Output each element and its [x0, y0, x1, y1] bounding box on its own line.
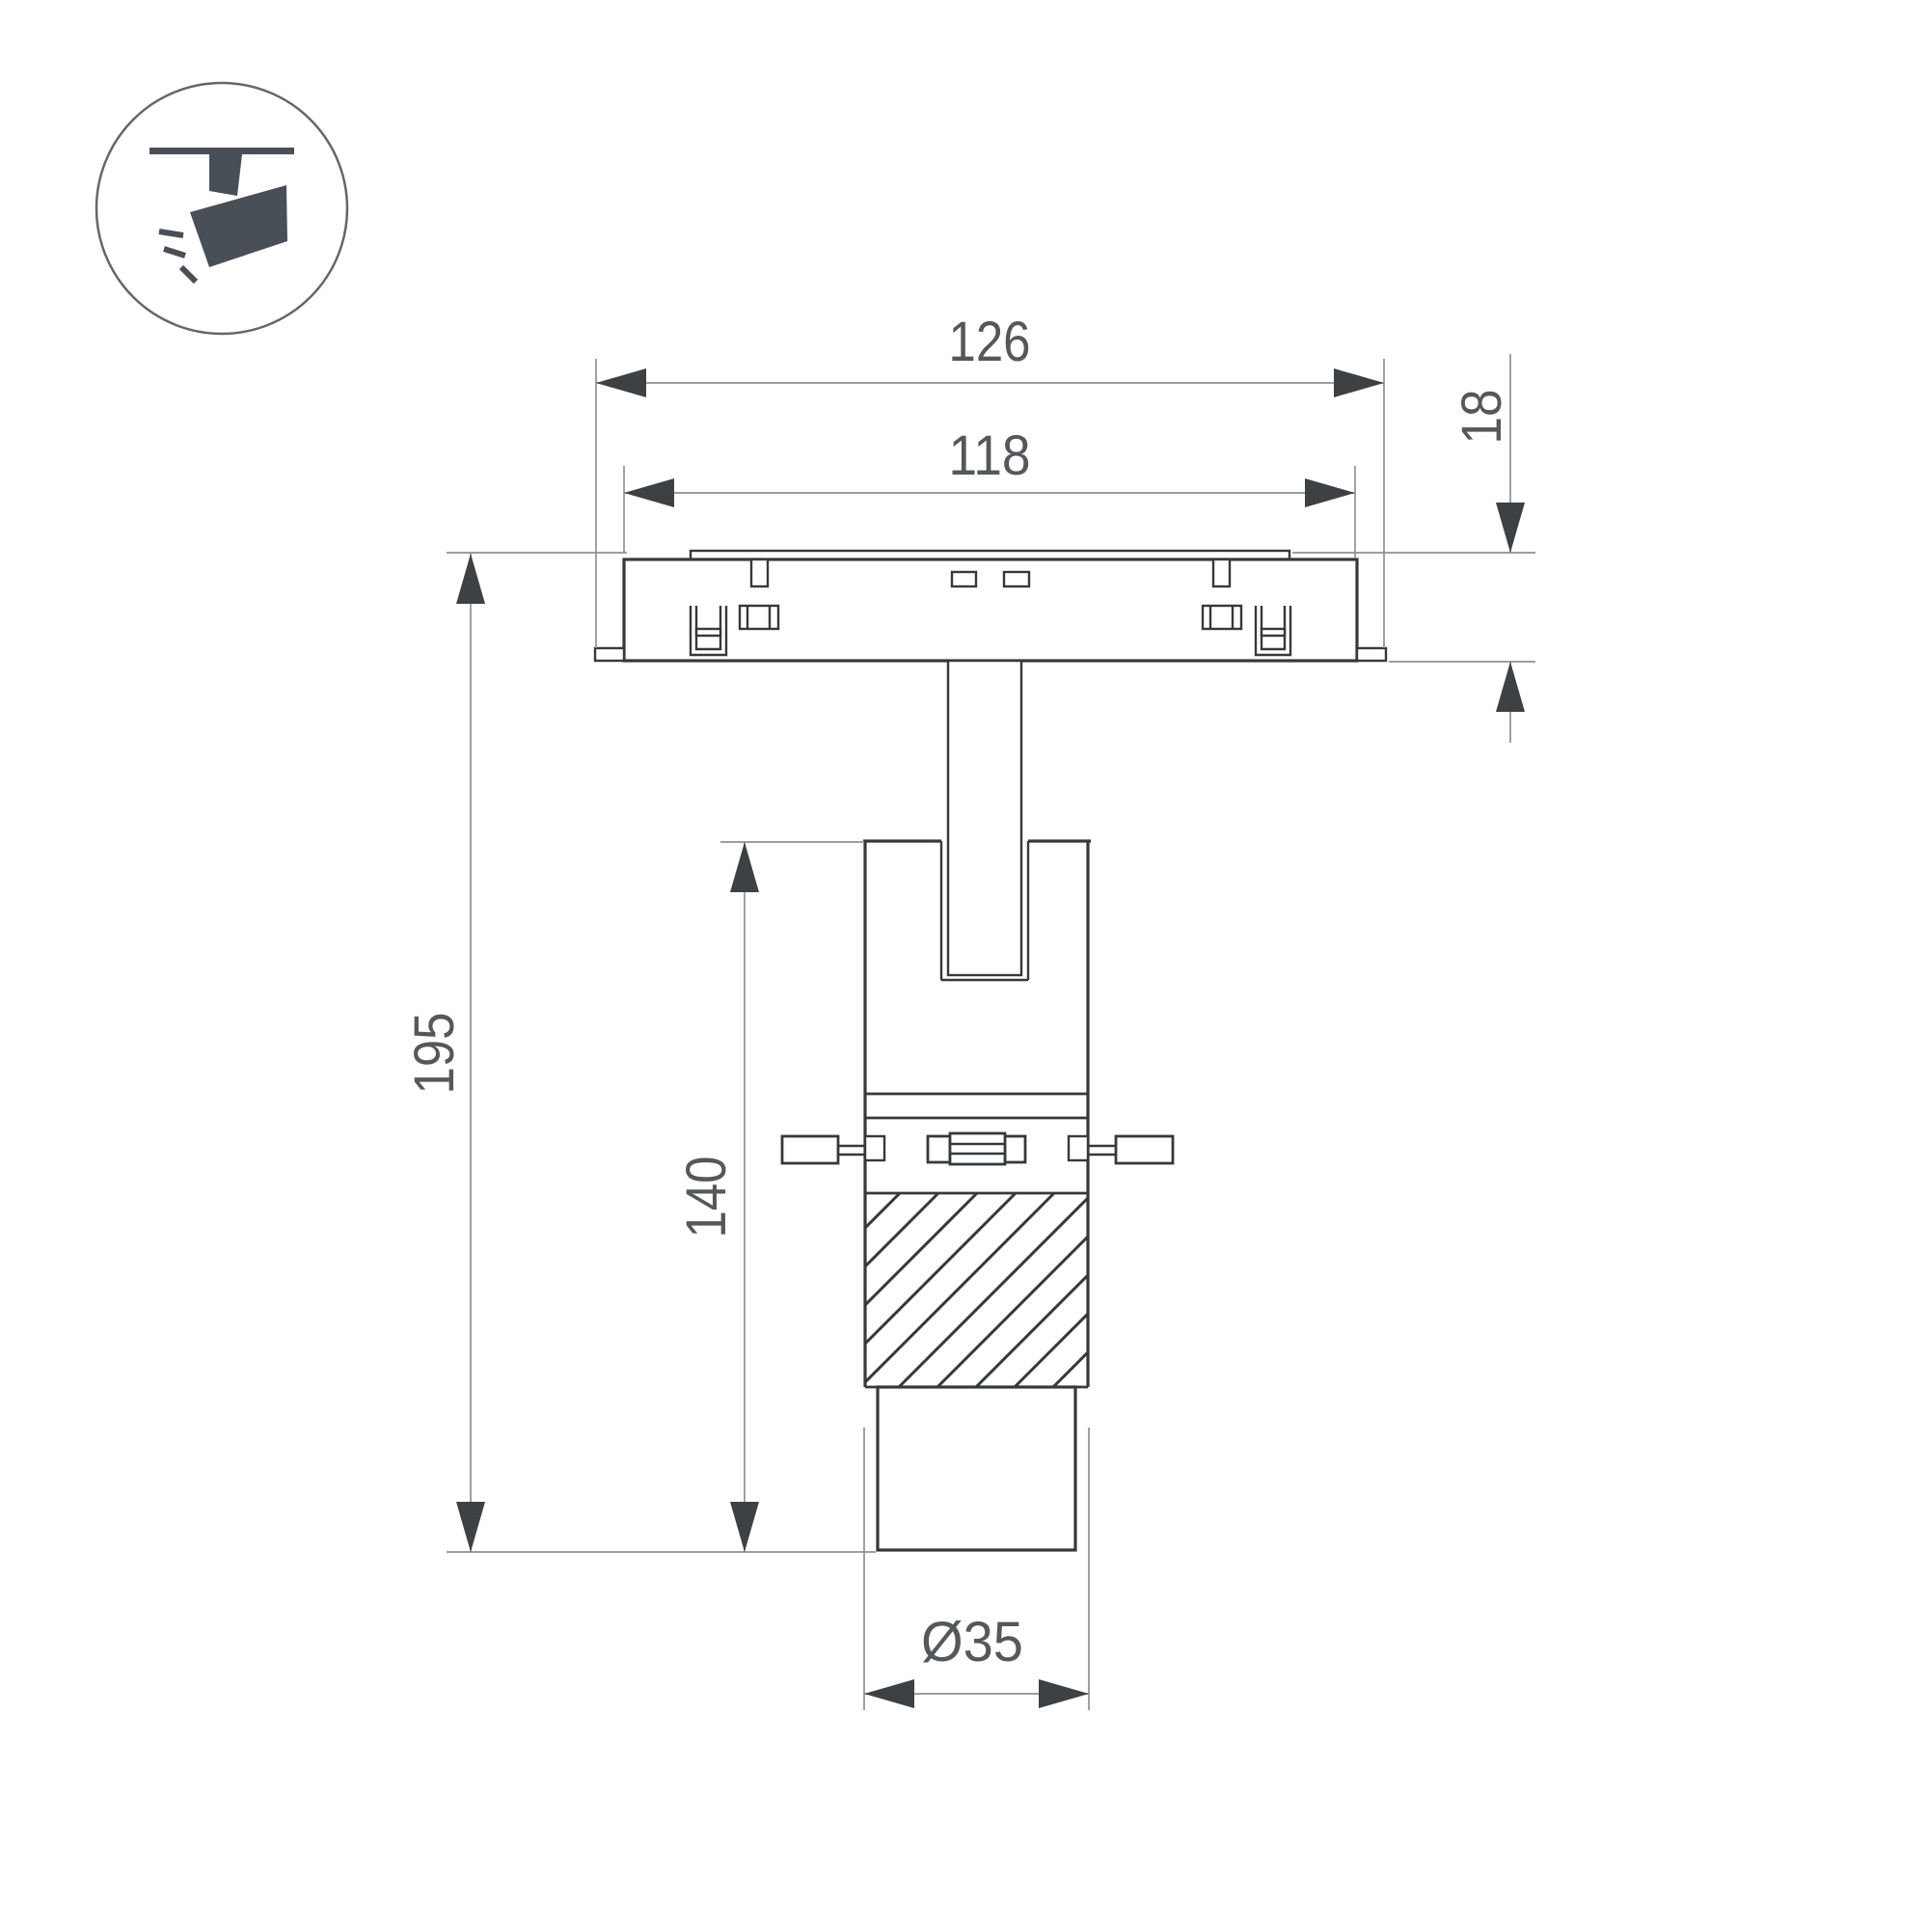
base-tab-right	[1213, 559, 1230, 586]
arrowhead-left-icon	[864, 1679, 914, 1708]
center-adjustment-screw	[928, 1133, 1025, 1164]
spotlight-body	[706, 661, 1247, 1550]
technical-drawing-canvas: 126 118 18 195 140	[0, 0, 1927, 1927]
dimension-base-height: 18	[1451, 354, 1525, 743]
arrowhead-left-icon	[596, 368, 646, 397]
dim-label-track-width: 126	[949, 311, 1031, 373]
base-foot-right	[1357, 648, 1386, 661]
base-tab-left	[751, 559, 768, 586]
arrowhead-left-icon	[624, 478, 674, 507]
base-lug-left	[740, 606, 778, 629]
adjustment-knob-right	[1069, 1136, 1173, 1163]
dimension-adapter-width: 118	[624, 424, 1355, 507]
suspension-stem	[948, 661, 1021, 975]
dim-label-base-height: 18	[1451, 390, 1513, 445]
dim-label-head-diameter: Ø35	[921, 1611, 1023, 1673]
arrowhead-right-icon	[1039, 1679, 1089, 1708]
drawing-page: 126 118 18 195 140	[0, 0, 1927, 1927]
arrowhead-down-icon	[456, 1502, 485, 1552]
dimension-track-width: 126	[596, 311, 1384, 397]
dimension-total-height: 195	[403, 554, 485, 1552]
dimension-body-height: 140	[675, 842, 759, 1552]
fixture-drawing	[595, 551, 1386, 1550]
arrowhead-right-icon	[1305, 478, 1355, 507]
base-contact-left	[952, 572, 976, 586]
dim-label-adapter-width: 118	[949, 424, 1031, 487]
icon-stem	[209, 154, 242, 196]
base-foot-left	[595, 648, 624, 661]
arrowhead-right-icon	[1334, 368, 1384, 397]
arrowhead-up-icon	[456, 554, 485, 604]
adjustment-knob-left	[782, 1136, 884, 1163]
dim-label-body-height: 140	[675, 1156, 738, 1238]
arrowhead-down-icon	[730, 1502, 759, 1552]
icon-track-bar	[149, 148, 294, 154]
track-adapter-base	[595, 551, 1386, 661]
track-spotlight-icon	[96, 83, 347, 334]
dimension-head-diameter: Ø35	[864, 1611, 1089, 1708]
arrowhead-up-icon	[1496, 662, 1525, 712]
arrowhead-down-icon	[1496, 503, 1525, 553]
base-contact-right	[1004, 572, 1029, 586]
base-lug-right	[1203, 606, 1241, 629]
arrowhead-up-icon	[730, 842, 759, 892]
dim-label-total-height: 195	[403, 1013, 466, 1095]
base-body	[624, 559, 1357, 661]
lens-barrel	[878, 1387, 1075, 1550]
